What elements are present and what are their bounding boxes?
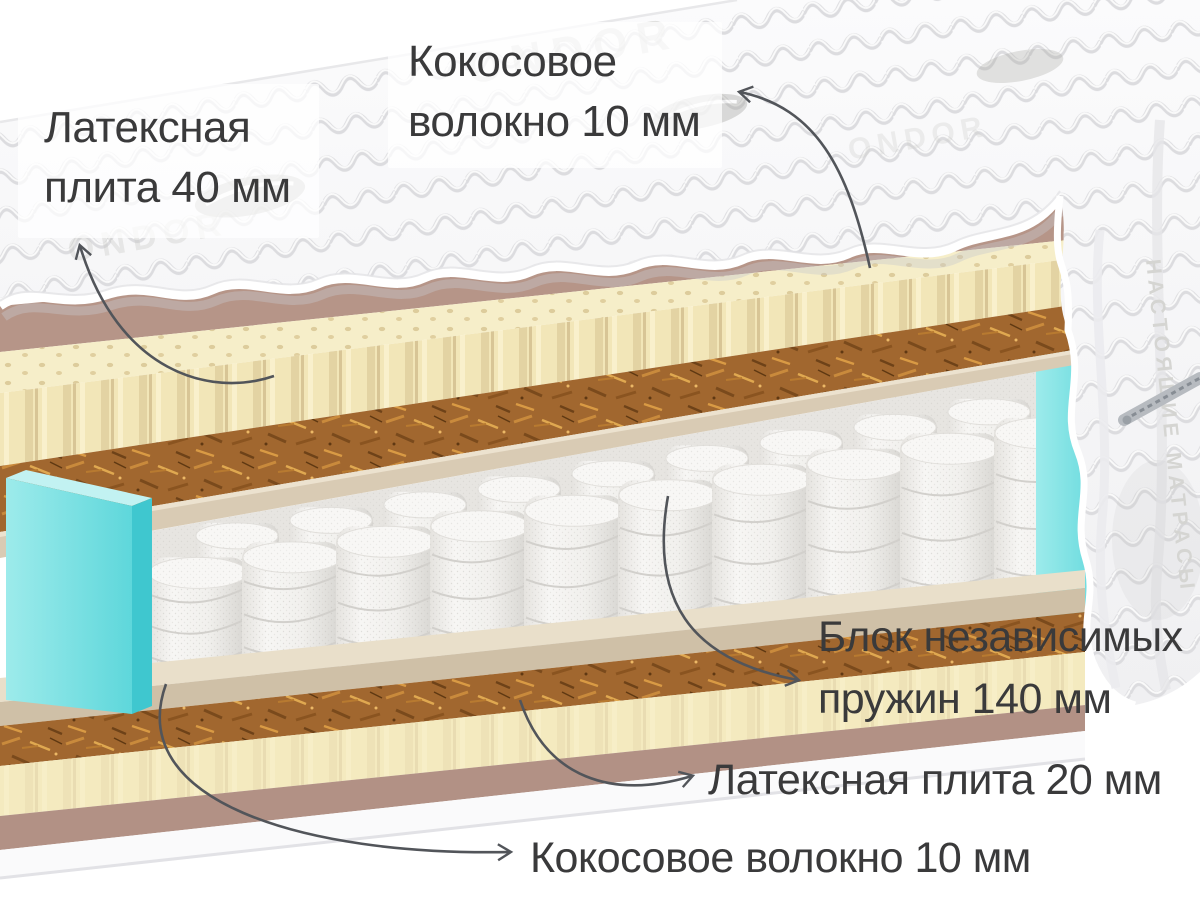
label-coconut-top: Кокосовое волокно 10 мм xyxy=(388,22,722,168)
label-coconut-top-line1: Кокосовое xyxy=(408,32,700,92)
label-coconut-bottom: Кокосовое волокно 10 мм xyxy=(530,828,1031,888)
label-spring-block: Блок независимых пружин 140 мм xyxy=(818,606,1183,730)
label-spring-block-line1: Блок независимых xyxy=(818,606,1183,668)
label-coconut-top-line2: волокно 10 мм xyxy=(408,92,700,152)
label-latex-bottom: Латексная плита 20 мм xyxy=(708,750,1162,810)
label-latex-top-line1: Латексная xyxy=(44,98,291,158)
label-spring-block-line2: пружин 140 мм xyxy=(818,668,1183,730)
label-latex-top-line2: плита 40 мм xyxy=(44,158,291,218)
label-latex-top: Латексная плита 40 мм xyxy=(18,84,319,238)
mattress-cutaway-diagram: ONDOR ONDOR ONDOR НАСТОЯЩИЕ МАТРАСЫ Лате… xyxy=(0,0,1200,900)
side-foam-left xyxy=(6,470,152,714)
